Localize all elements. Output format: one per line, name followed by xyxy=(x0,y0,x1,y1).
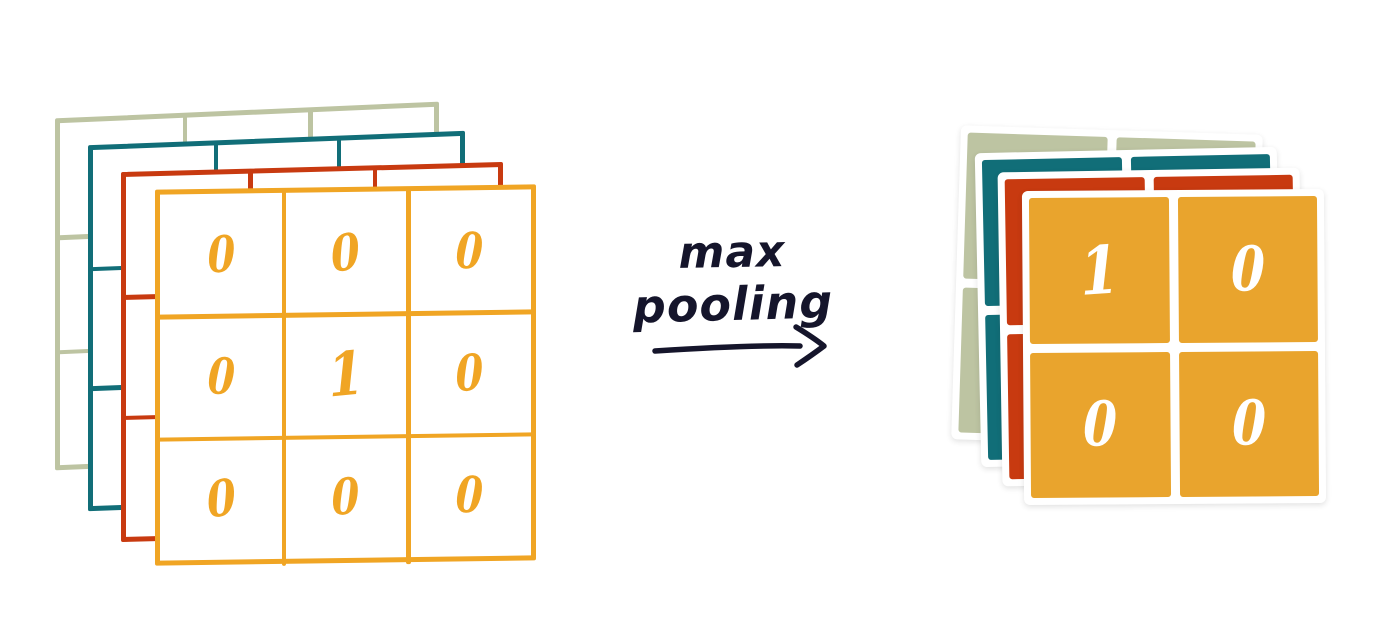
input-cell-r2c0: 0 xyxy=(160,437,284,561)
input-cell-r0c2: 0 xyxy=(407,189,531,313)
output-cell-r0c0: 1 xyxy=(1029,197,1170,343)
input-cell-r0c0: 0 xyxy=(160,193,284,317)
input-layer-yellow: 0 0 0 0 1 0 0 0 0 xyxy=(155,184,536,565)
output-cell-r1c0: 0 xyxy=(1030,352,1171,498)
input-grid-cells: 0 0 0 0 1 0 0 0 0 xyxy=(160,189,531,560)
input-cell-r1c2: 0 xyxy=(407,311,531,435)
operation-label-line1: max xyxy=(652,230,813,277)
input-cell-r0c1: 0 xyxy=(284,191,408,315)
input-cell-r1c1: 1 xyxy=(284,313,408,437)
input-cell-r1c0: 0 xyxy=(160,315,284,439)
input-cell-r2c1: 0 xyxy=(284,435,408,559)
output-layer-yellow: 1 0 0 0 xyxy=(1022,189,1326,505)
input-cell-r2c2: 0 xyxy=(407,433,531,557)
output-cell-r0c1: 0 xyxy=(1177,196,1318,342)
output-cell-r1c1: 0 xyxy=(1179,350,1320,496)
max-pooling-diagram: 0 0 0 0 1 0 0 0 0 max pooling xyxy=(0,0,1400,644)
right-arrow-icon xyxy=(646,318,841,380)
